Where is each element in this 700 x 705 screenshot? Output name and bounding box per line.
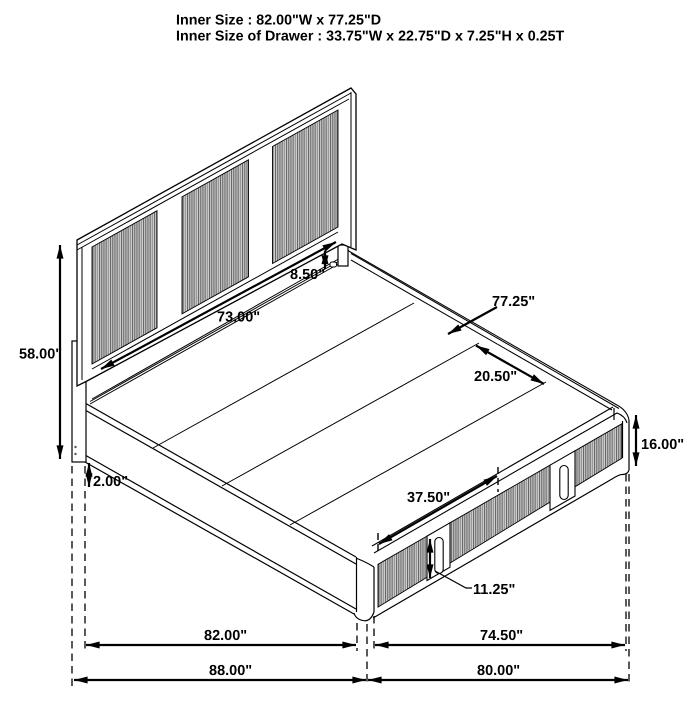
svg-text:16.00": 16.00" [641, 437, 684, 453]
svg-text:2.00": 2.00" [93, 474, 128, 490]
svg-text:74.50": 74.50" [480, 628, 523, 644]
svg-text:8.50": 8.50" [290, 267, 325, 283]
svg-text:80.00": 80.00" [477, 663, 520, 679]
svg-text:73.00": 73.00" [217, 310, 260, 326]
svg-text:58.00": 58.00" [19, 347, 62, 363]
svg-text:37.50": 37.50" [407, 490, 450, 506]
svg-text:88.00": 88.00" [209, 663, 252, 679]
svg-text:20.50": 20.50" [474, 369, 517, 385]
svg-text:Inner Size of Drawer : 33.75"W: Inner Size of Drawer : 33.75"W x 22.75"D… [176, 29, 565, 45]
svg-text:Inner Size : 82.00"W x 77.25"D: Inner Size : 82.00"W x 77.25"D [176, 13, 381, 29]
svg-text:77.25": 77.25" [492, 294, 535, 310]
svg-text:11.25": 11.25" [473, 582, 515, 598]
svg-text:82.00": 82.00" [204, 628, 247, 644]
